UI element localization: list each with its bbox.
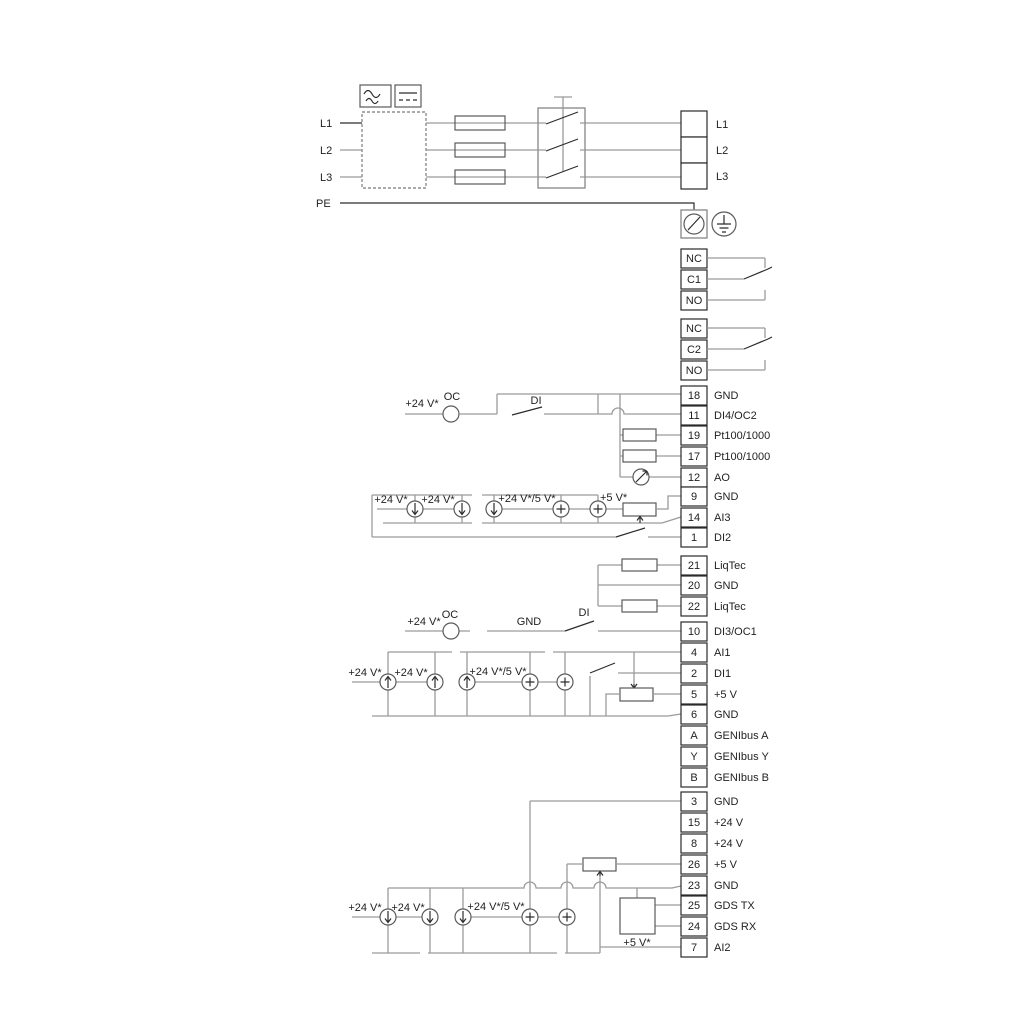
power-section: L1 L2 L3 PE (316, 85, 736, 238)
emc-filter-box (362, 112, 426, 188)
terminal-number: Y (690, 751, 698, 763)
potentiometer-icon (623, 503, 656, 516)
terminal-label: GND (714, 491, 739, 503)
potentiometer-icon (583, 858, 616, 871)
terminal-number: 25 (688, 900, 700, 912)
terminal-label: +5 V (714, 859, 738, 871)
terminal-label: C1 (687, 274, 701, 286)
open-collector-icon (443, 406, 459, 422)
relay2-block: NC C2 NO (681, 319, 772, 380)
terminal-label: DI1 (714, 668, 731, 680)
terminal-label: AI1 (714, 647, 731, 659)
relay1-block: NC C1 NO (681, 249, 772, 310)
di2-switch-icon (616, 528, 645, 537)
terminal-number: 3 (691, 796, 697, 808)
terminal-label: +24 V (714, 838, 744, 850)
v24-label: +24 V* (405, 398, 439, 410)
terminal-label: AI2 (714, 942, 731, 954)
oc-label: OC (444, 391, 461, 403)
terminal-label: GND (714, 709, 739, 721)
terminal-label: L3 (716, 171, 728, 183)
terminal-number: 21 (688, 560, 700, 572)
di-label: DI (531, 395, 542, 407)
terminal-number: 23 (688, 880, 700, 892)
sensor-group-a-bottom (383, 517, 681, 523)
v24-5v-label: +24 V*/5 V* (467, 901, 525, 913)
blockB-wiring: +24 V* OC GND DI +24 V* +24 V* +24 V*/5 … (348, 607, 681, 716)
blockC-wiring: +24 V* +24 V* +24 V*/5 V* +5 V* (348, 801, 681, 953)
terminal-label: +5 V (714, 689, 738, 701)
terminal-number: 6 (691, 709, 697, 721)
terminal-label: GDS RX (714, 921, 757, 933)
oc-label: OC (442, 609, 459, 621)
terminal-number: 9 (691, 491, 697, 503)
v24-label: +24 V* (407, 616, 441, 628)
terminal-number: 18 (688, 390, 700, 402)
terminal-label: GDS TX (714, 900, 755, 912)
open-collector-icon (443, 623, 459, 639)
terminal-label: NC (686, 253, 702, 265)
wire (656, 496, 681, 509)
terminal-label: GND (714, 880, 739, 892)
wire-pe (340, 203, 694, 210)
terminal-label: GND (714, 580, 739, 592)
line-label-l3: L3 (320, 172, 332, 184)
terminal-number: 20 (688, 580, 700, 592)
ac-symbol-icon (360, 85, 391, 107)
terminal-number: 19 (688, 430, 700, 442)
dc-symbol-icon (395, 85, 421, 107)
terminal-label: C2 (687, 344, 701, 356)
terminal-label: NO (686, 295, 703, 307)
wiper-arrow-icon (597, 872, 603, 877)
sensor-group-b-bottom (372, 714, 681, 716)
liqtec-wiring (598, 559, 681, 612)
di1-switch-icon (590, 663, 615, 673)
terminal-label: Pt100/1000 (714, 430, 770, 442)
v24-label: +24 V* (348, 667, 382, 679)
v24-label: +24 V* (394, 667, 428, 679)
diagram-canvas: L1 L2 L3 PE (0, 0, 1024, 1024)
terminal-label: GENIbus B (714, 772, 769, 784)
terminal-number: A (690, 730, 698, 742)
liqtec-sensor-icon (622, 559, 657, 571)
terminal-label: DI4/OC2 (714, 410, 757, 422)
di-switch-icon (512, 407, 542, 415)
v24-5v-label: +24 V*/5 V* (498, 493, 556, 505)
wire-gnd3 (530, 801, 681, 953)
line-label-l2: L2 (320, 145, 332, 157)
terminal-label: LiqTec (714, 601, 746, 613)
pt100-resistor-icon (623, 429, 656, 441)
v24-label: +24 V* (348, 902, 382, 914)
terminal-number: B (690, 772, 697, 784)
terminal-block-c: 3 GND 15 +24 V 8 +24 V 26 +5 V 23 GND 25… (681, 792, 757, 957)
terminal-block-a: 18 GND 11 DI4/OC2 19 Pt100/1000 17 Pt100… (681, 386, 770, 547)
v24-label: +24 V* (421, 494, 455, 506)
terminal-label: Pt100/1000 (714, 451, 770, 463)
terminal-number: 1 (691, 532, 697, 544)
di-bracket (497, 394, 681, 414)
gds-sensor-icon (620, 898, 655, 934)
terminal-label: LiqTec (714, 560, 746, 572)
relay2-contact-icon (744, 337, 772, 349)
wiper-arrow-icon (637, 517, 643, 524)
terminal-number: 24 (688, 921, 700, 933)
terminal-label: AO (714, 472, 730, 484)
terminal-number: 11 (688, 410, 699, 422)
terminal-label: DI2 (714, 532, 731, 544)
terminal-number: 22 (688, 601, 700, 613)
terminal-number: 7 (691, 942, 697, 954)
relay1-wiring (707, 258, 765, 300)
liqtec-sensor-icon (622, 600, 657, 612)
terminal-label: GND (714, 796, 739, 808)
terminal-label: GENIbus Y (714, 751, 769, 763)
mains-terminal-block: L1 L2 L3 (681, 111, 728, 189)
terminal-number: 4 (691, 647, 697, 659)
wiring-diagram: L1 L2 L3 PE (0, 0, 1024, 1024)
terminal-number: 10 (688, 626, 700, 638)
terminal-number: 8 (691, 838, 697, 850)
terminal-number: 15 (688, 817, 700, 829)
pe-terminal-icon (681, 210, 707, 238)
wire-di4 (544, 408, 681, 414)
protective-earth-icon (712, 212, 736, 236)
terminal-number: 17 (688, 451, 700, 463)
terminal-number: 2 (691, 668, 697, 680)
terminal-label: NO (686, 365, 703, 377)
terminal-label: NC (686, 323, 702, 335)
v24-label: +24 V* (374, 494, 408, 506)
v5-label: +5 V* (600, 492, 628, 504)
terminal-number: 26 (688, 859, 700, 871)
potentiometer-icon (620, 688, 653, 701)
v24-label: +24 V* (391, 902, 425, 914)
terminal-label: GND (714, 390, 739, 402)
v5-label: +5 V* (623, 937, 651, 949)
blockA-wiring: +24 V* OC DI +24 V* +24 V* +24 V*/5 V* +… (372, 391, 681, 537)
terminal-number: 5 (691, 689, 697, 701)
terminal-label: GENIbus A (714, 730, 769, 742)
terminal-block-liqtec: 21 LiqTec 20 GND 22 LiqTec (681, 556, 746, 616)
di3-switch-icon (565, 621, 594, 631)
terminal-number: 14 (688, 512, 700, 524)
relay2-wiring (707, 328, 765, 370)
terminal-label: L1 (716, 119, 728, 131)
terminal-label: AI3 (714, 512, 731, 524)
gnd-bus (388, 882, 681, 888)
terminal-block-b: 10 DI3/OC1 4 AI1 2 DI1 5 +5 V 6 GND A GE… (681, 622, 769, 787)
line-label-l1: L1 (320, 118, 332, 130)
v24-5v-label: +24 V*/5 V* (469, 666, 527, 678)
terminal-label: DI3/OC1 (714, 626, 757, 638)
relay1-contact-icon (744, 267, 772, 279)
terminal-number: 12 (688, 472, 700, 484)
di-label: DI (579, 607, 590, 619)
line-label-pe: PE (316, 198, 331, 210)
gnd-label: GND (517, 616, 542, 628)
main-switch-icon (538, 97, 585, 188)
pt100-resistor-icon (623, 450, 656, 462)
analog-output-meter-icon (633, 469, 649, 485)
terminal-label: L2 (716, 145, 728, 157)
terminal-label: +24 V (714, 817, 744, 829)
